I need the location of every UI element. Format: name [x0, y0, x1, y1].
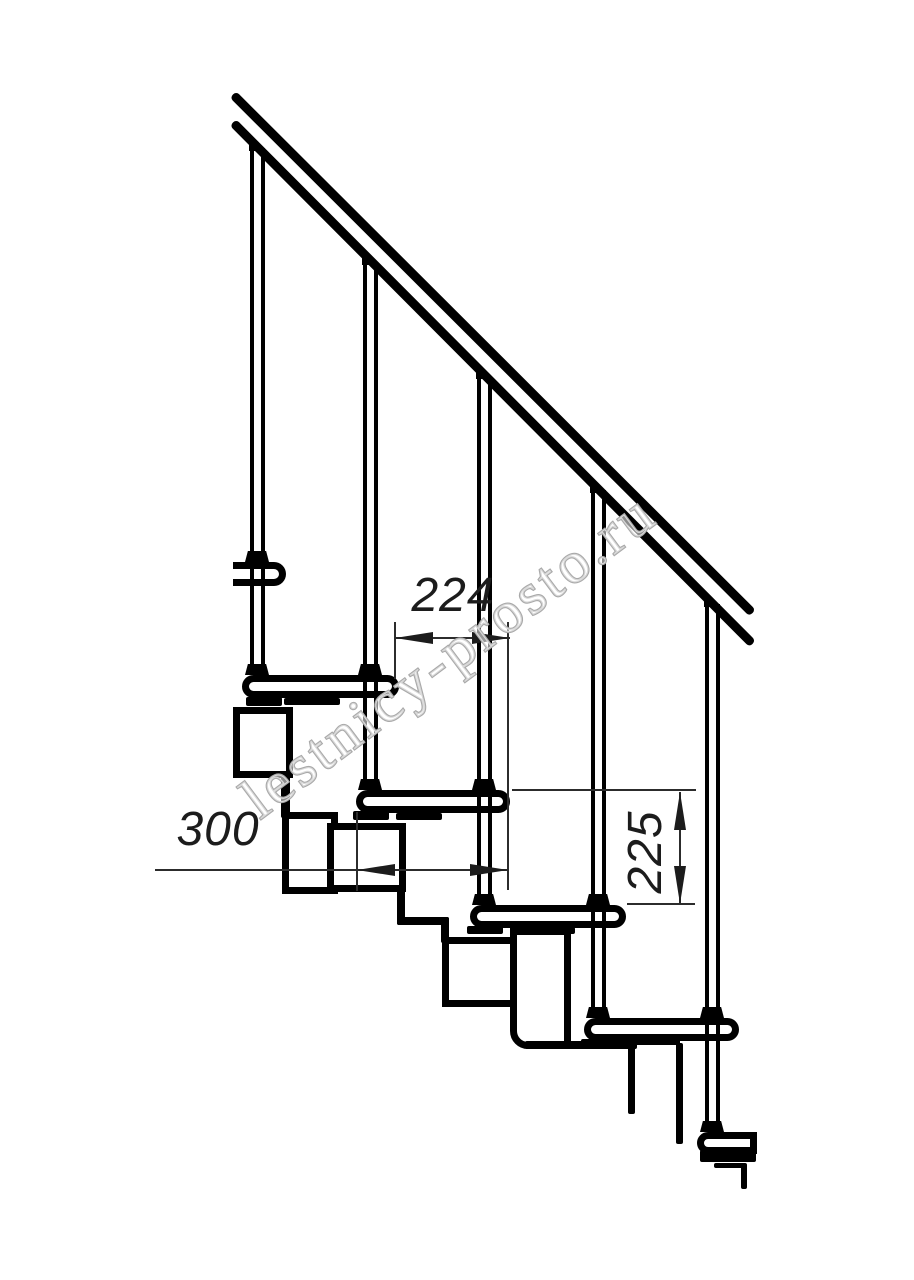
dimension-depth-line: [155, 869, 508, 871]
arrowhead-up-icon: [674, 792, 686, 830]
baluster-collar: [586, 1007, 610, 1018]
dimension-depth-ext-left: [356, 812, 358, 891]
mount-mark: [396, 813, 442, 820]
mount-mark: [700, 1150, 756, 1162]
baluster-collar: [472, 894, 496, 905]
mount-mark: [467, 926, 503, 934]
dimension-going-ext-left: [394, 622, 396, 679]
dimension-going-label: 224: [403, 572, 503, 620]
module-box-step4-right: [510, 928, 571, 1049]
watermark: lestnicy-prosto.ru: [0, 0, 914, 1280]
baluster-1: [250, 148, 265, 675]
mount-mark: [600, 1038, 680, 1045]
baluster-collar: [358, 779, 382, 790]
baluster-4: [591, 490, 606, 1018]
baluster-collar: [245, 551, 269, 562]
module-box-step3-right: [327, 823, 406, 892]
handrail-bottom-line: [230, 119, 756, 647]
module-drop-line-5: [676, 1043, 683, 1144]
baluster-2: [363, 262, 378, 790]
dimension-depth-label: 300: [168, 806, 268, 854]
dimension-rise-label: 225: [622, 802, 670, 902]
mount-mark: [353, 811, 389, 820]
dimension-rise-ext-bottom: [627, 903, 695, 905]
baluster-collar: [700, 1007, 724, 1018]
mount-mark: [284, 698, 340, 705]
dimension-shared-ext-right: [507, 622, 509, 890]
mount-mark: [557, 927, 575, 934]
module-box-step2: [233, 707, 293, 778]
arrowhead-left-icon: [395, 632, 433, 644]
baluster-collar: [586, 894, 610, 905]
module-line-under-tread6-v: [741, 1163, 747, 1189]
baluster-collar: [245, 664, 269, 675]
baluster-collar: [358, 664, 382, 675]
staircase-technical-drawing: 224 300 225 lestnicy-prosto.ru: [0, 0, 914, 1280]
handrail-top-line: [230, 91, 756, 616]
mount-mark: [246, 697, 282, 706]
dimension-rise-ext-top: [512, 789, 696, 791]
arrowhead-down-icon: [674, 866, 686, 904]
module-box-step4-left: [442, 937, 519, 1007]
baluster-5: [705, 604, 720, 1132]
baluster-collar: [472, 779, 496, 790]
baluster-collar: [700, 1121, 724, 1132]
module-drop-line-4: [628, 1041, 635, 1114]
